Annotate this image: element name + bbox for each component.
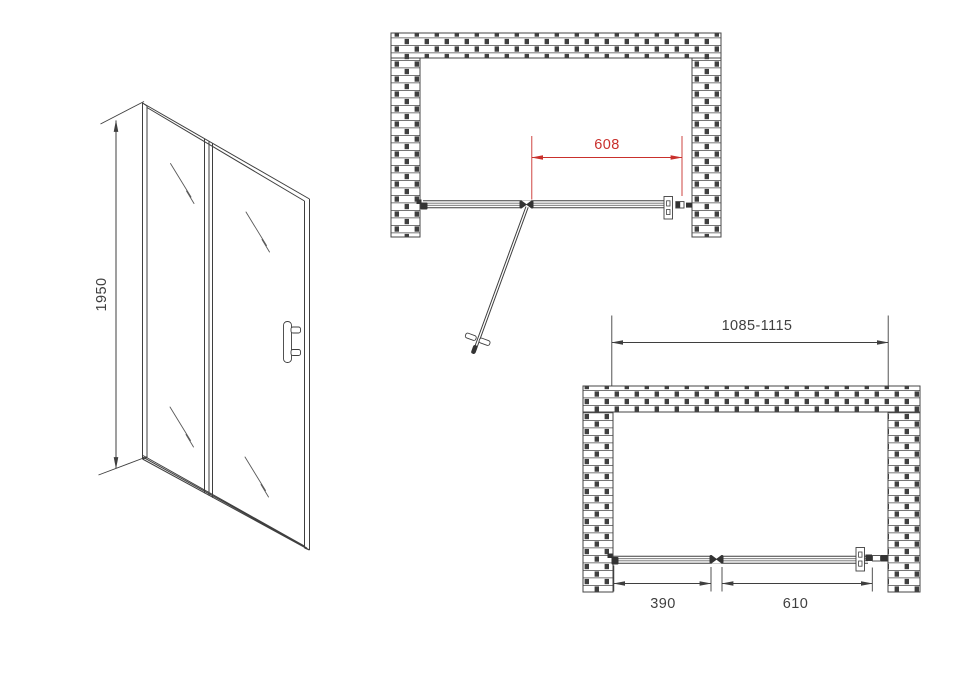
bottom-plan-view: 1085-1115 390 610 — [583, 316, 920, 613]
brick-wall-left — [583, 412, 613, 592]
dimension-610: 610 — [722, 567, 872, 612]
door-handle-icon — [284, 322, 301, 363]
hinge-icon — [710, 555, 724, 564]
top-plan-view: 608 — [391, 33, 721, 354]
brick-wall-right — [888, 412, 920, 592]
glass-shine-mark — [245, 457, 269, 497]
glass-shine-marks — [170, 164, 270, 498]
glass-shine-mark — [246, 212, 270, 252]
dimension-1950: 1950 — [94, 102, 148, 476]
glass-shine-mark — [171, 164, 195, 204]
door-handle-plan-icon — [465, 333, 491, 355]
fixed-panel-glass — [613, 556, 868, 563]
brick-wall-left — [391, 58, 420, 237]
door-width-dimension-label: 608 — [594, 137, 619, 153]
dimension-390: 390 — [614, 566, 711, 613]
brick-wall-top — [391, 33, 721, 58]
wall-profile-icon — [664, 197, 692, 220]
door-panel-dimension-label: 610 — [783, 596, 808, 612]
fixed-panel-glass — [423, 201, 665, 208]
glass-shine-mark — [170, 407, 194, 447]
fixed-panel-dimension-label: 390 — [650, 596, 675, 612]
door-leaf-open — [465, 207, 528, 355]
shower-door-technical-drawing: 1950 — [0, 0, 970, 686]
brick-wall-right — [692, 58, 721, 237]
front-view: 1950 — [94, 102, 310, 551]
dimension-608: 608 — [532, 136, 682, 200]
drawing-canvas: 1950 — [0, 0, 970, 686]
brick-wall-top — [583, 386, 920, 412]
hinge-icon — [520, 201, 534, 209]
dimension-1085-1115: 1085-1115 — [612, 316, 888, 387]
overall-width-dimension-label: 1085-1115 — [722, 318, 793, 334]
wall-profile-icon — [856, 548, 888, 572]
height-dimension-label: 1950 — [94, 278, 110, 312]
